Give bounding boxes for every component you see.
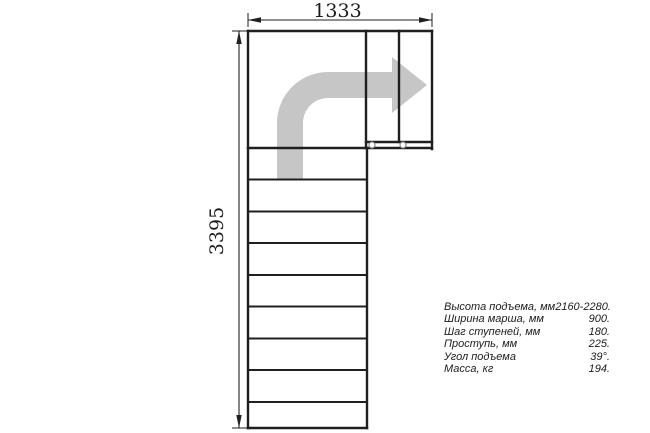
direction-arrow-icon — [277, 57, 427, 180]
spec-row-mass: Масса, кг 194. — [444, 363, 610, 375]
spec-label: Проступь, мм — [444, 338, 517, 350]
spec-row-angle: Угол подъема 39°. — [444, 351, 610, 363]
spec-row-tread: Проступь, мм 225. — [444, 338, 610, 350]
spec-label: Высота подъема, мм — [444, 301, 555, 313]
spec-row-height: Высота подъема, мм 2160-2280. — [444, 301, 610, 313]
dimension-height-label: 3395 — [206, 203, 228, 259]
spec-value: 180. — [589, 326, 610, 338]
spec-label: Угол подъема — [444, 351, 516, 363]
spec-value: 900. — [589, 313, 610, 325]
spec-value: 194. — [589, 363, 610, 375]
spec-table: Высота подъема, мм 2160-2280. Ширина мар… — [444, 301, 610, 375]
spec-value: 39°. — [590, 351, 610, 363]
stair-tread-lines — [248, 180, 367, 403]
spec-value: 2160-2280. — [555, 301, 611, 313]
stair-drawing-page: 1333 3395 Высота подъема, мм 2160-2280. … — [0, 0, 650, 433]
spec-label: Ширина марша, мм — [444, 313, 544, 325]
dimension-line-height — [232, 31, 248, 428]
spec-row-march-width: Ширина марша, мм 900. — [444, 313, 610, 325]
dimension-width-label: 1333 — [300, 0, 375, 22]
spec-label: Шаг ступеней, мм — [444, 326, 540, 338]
spec-label: Масса, кг — [444, 363, 493, 375]
spec-row-step-pitch: Шаг ступеней, мм 180. — [444, 326, 610, 338]
spec-value: 225. — [589, 338, 610, 350]
